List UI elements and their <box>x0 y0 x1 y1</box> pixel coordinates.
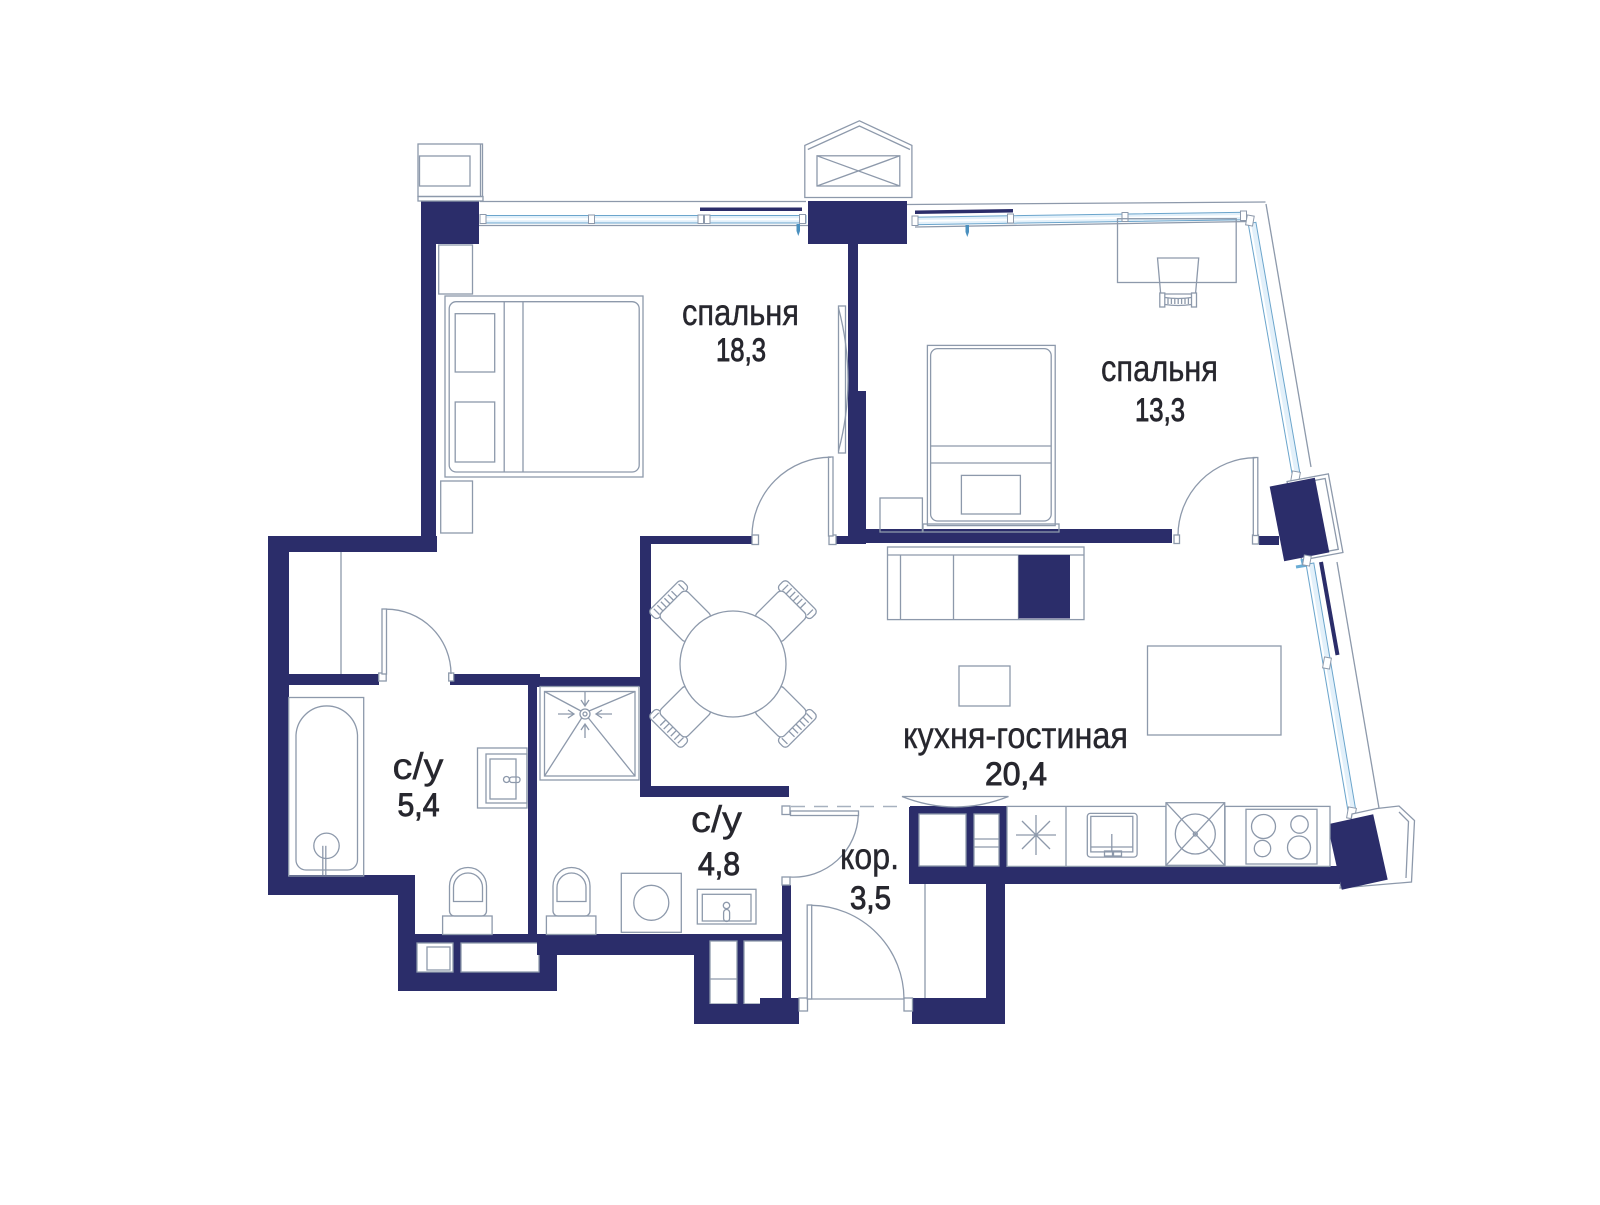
svg-text:кухня-гостиная: кухня-гостиная <box>903 715 1128 756</box>
svg-text:с/у: с/у <box>393 746 445 787</box>
svg-text:18,3: 18,3 <box>716 332 766 368</box>
svg-text:кор.: кор. <box>840 836 899 877</box>
svg-text:4,8: 4,8 <box>698 846 740 882</box>
svg-text:с/у: с/у <box>691 799 743 840</box>
svg-text:3,5: 3,5 <box>850 880 891 916</box>
svg-text:спальня: спальня <box>682 292 799 333</box>
svg-text:13,3: 13,3 <box>1135 392 1185 428</box>
svg-text:спальня: спальня <box>1101 348 1218 389</box>
svg-text:5,4: 5,4 <box>398 787 440 823</box>
svg-text:20,4: 20,4 <box>985 756 1047 792</box>
